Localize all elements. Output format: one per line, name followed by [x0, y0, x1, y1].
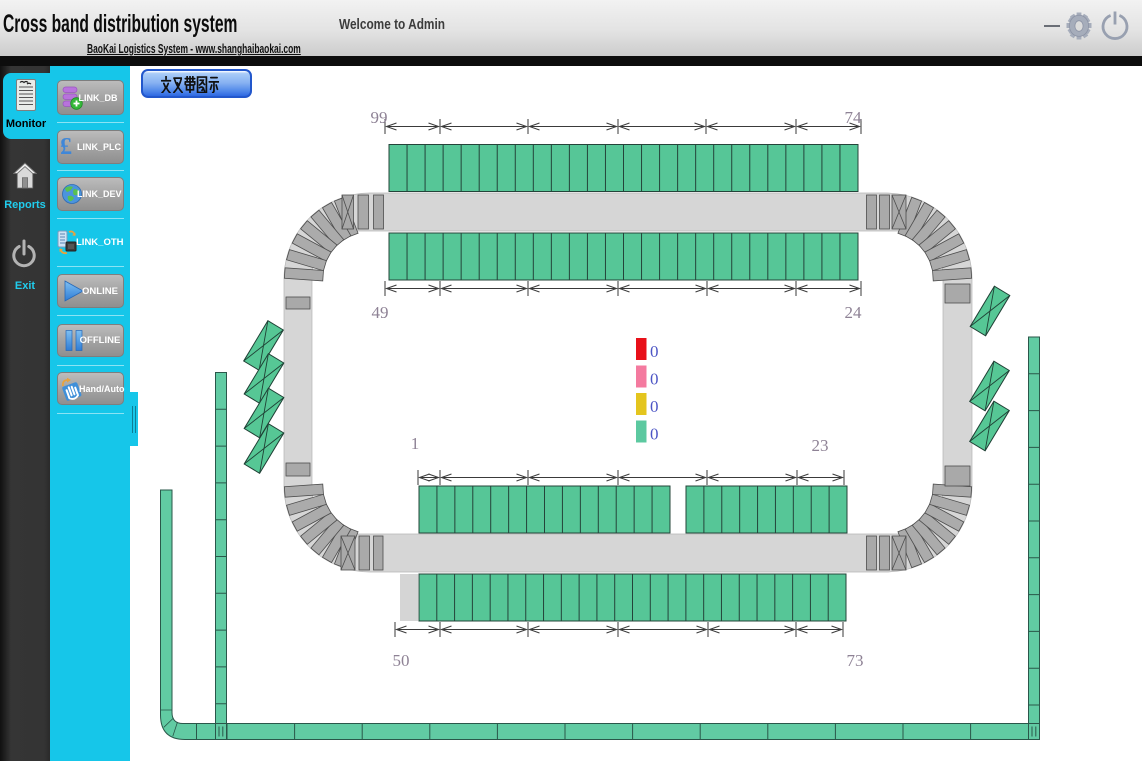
- svg-text:73: 73: [847, 651, 864, 670]
- svg-text:0: 0: [650, 342, 659, 361]
- svg-text:74: 74: [845, 108, 863, 127]
- svg-text:0: 0: [650, 397, 659, 416]
- svg-text:0: 0: [650, 370, 659, 389]
- svg-text:1: 1: [411, 434, 420, 453]
- svg-text:23: 23: [812, 436, 829, 455]
- svg-text:49: 49: [372, 303, 389, 322]
- svg-text:0: 0: [650, 425, 659, 444]
- svg-text:50: 50: [393, 651, 410, 670]
- svg-text:24: 24: [845, 303, 863, 322]
- svg-text:99: 99: [371, 108, 388, 127]
